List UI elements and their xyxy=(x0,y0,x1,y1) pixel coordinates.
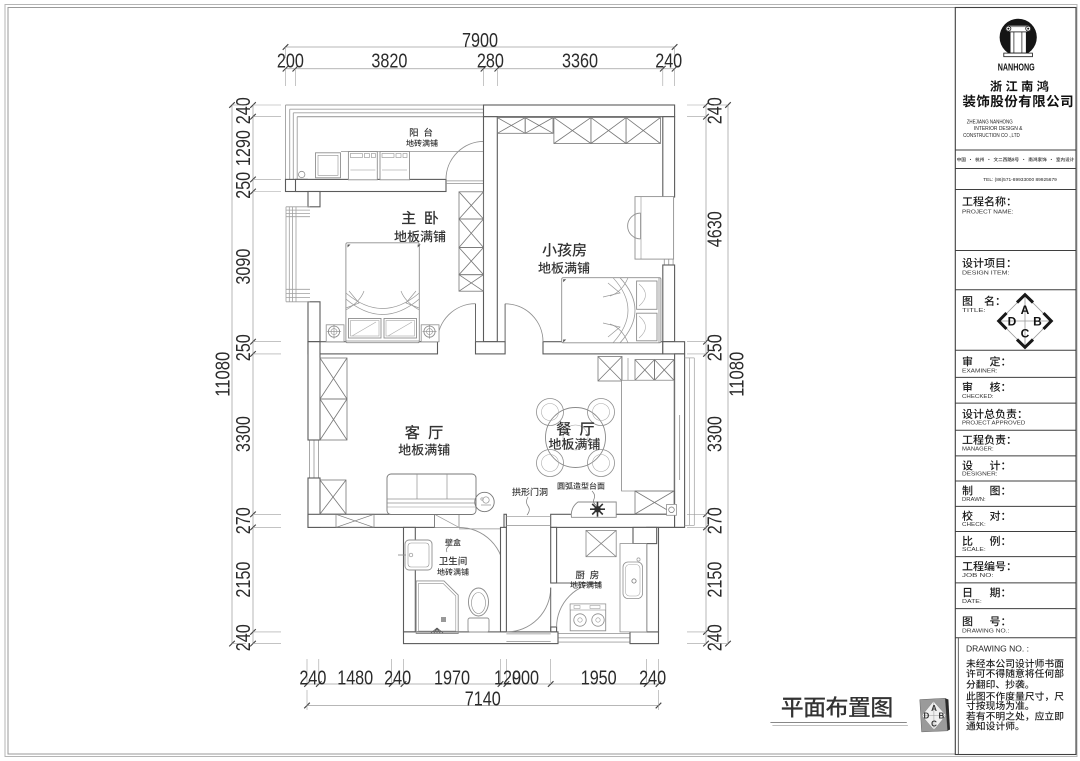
svg-text:900: 900 xyxy=(512,668,539,690)
svg-text:NANHONG: NANHONG xyxy=(998,63,1035,74)
svg-text:B: B xyxy=(939,712,945,721)
svg-text:3090: 3090 xyxy=(233,249,255,285)
svg-text:DESIGNER:: DESIGNER: xyxy=(962,472,998,478)
svg-text:DATE:: DATE: xyxy=(962,599,982,605)
svg-text:240: 240 xyxy=(384,668,411,690)
svg-text:250: 250 xyxy=(705,334,727,361)
svg-text:3820: 3820 xyxy=(371,51,407,73)
svg-text:CHECKED:: CHECKED: xyxy=(962,394,994,400)
svg-text:C: C xyxy=(1021,327,1030,341)
svg-text:250: 250 xyxy=(233,334,255,361)
svg-text:DRAWING NO. :: DRAWING NO. : xyxy=(966,644,1029,654)
svg-text:PROJECT NAME:: PROJECT NAME: xyxy=(962,210,1014,216)
svg-text:270: 270 xyxy=(705,507,727,534)
svg-text:7900: 7900 xyxy=(462,30,498,52)
svg-text:CHECK:: CHECK: xyxy=(962,522,986,528)
svg-text:TEL: (86)571-89933000 899256: TEL: (86)571-89933000 89925679 xyxy=(983,177,1057,183)
svg-text:2150: 2150 xyxy=(705,562,727,598)
svg-text:C: C xyxy=(931,720,937,729)
svg-text:2150: 2150 xyxy=(233,562,255,598)
svg-text:200: 200 xyxy=(277,51,304,73)
svg-text:240: 240 xyxy=(655,51,682,73)
svg-text:240: 240 xyxy=(705,97,727,124)
svg-text:CONSTRUCTION CO .,LTD: CONSTRUCTION CO .,LTD xyxy=(963,133,1020,139)
svg-text:240: 240 xyxy=(299,668,326,690)
svg-text:INTERIOR DESIGN &: INTERIOR DESIGN & xyxy=(974,126,1023,132)
svg-text:EXAMINER:: EXAMINER: xyxy=(962,369,998,375)
svg-text:DESIGN ITEM:: DESIGN ITEM: xyxy=(962,271,1010,277)
svg-text:270: 270 xyxy=(233,507,255,534)
svg-text:SCALE:: SCALE: xyxy=(962,547,986,553)
svg-text:A: A xyxy=(931,704,937,713)
svg-text:240: 240 xyxy=(233,624,255,651)
svg-text:TITLE:: TITLE: xyxy=(962,308,986,314)
svg-text:3300: 3300 xyxy=(233,416,255,452)
svg-text:DRAWING NO.:: DRAWING NO.: xyxy=(962,628,1010,634)
svg-text:240: 240 xyxy=(233,97,255,124)
svg-text:11080: 11080 xyxy=(213,352,235,397)
svg-text:B: B xyxy=(1033,315,1042,329)
svg-text:1480: 1480 xyxy=(337,668,373,690)
svg-text:3360: 3360 xyxy=(562,51,598,73)
svg-text:7140: 7140 xyxy=(465,689,501,711)
svg-text:240: 240 xyxy=(705,624,727,651)
svg-text:3300: 3300 xyxy=(705,416,727,452)
svg-text:240: 240 xyxy=(639,668,666,690)
svg-text:11080: 11080 xyxy=(727,352,749,397)
svg-text:1950: 1950 xyxy=(581,668,617,690)
svg-text:ZHEJIANG NANHONG: ZHEJIANG NANHONG xyxy=(967,119,1013,125)
svg-text:1970: 1970 xyxy=(434,668,470,690)
svg-text:A: A xyxy=(1021,303,1030,317)
svg-text:280: 280 xyxy=(477,51,504,73)
svg-text:250: 250 xyxy=(233,172,255,199)
svg-text:1290: 1290 xyxy=(233,130,255,166)
svg-text:JOB NO:: JOB NO: xyxy=(962,573,994,579)
svg-text:4630: 4630 xyxy=(705,211,727,247)
svg-text:DRAWN:: DRAWN: xyxy=(962,497,986,503)
svg-text:PROJECT APPROVED: PROJECT APPROVED xyxy=(962,420,1025,426)
svg-text:D: D xyxy=(1008,315,1017,329)
svg-text:D: D xyxy=(924,712,930,721)
svg-text:MANAGER:: MANAGER: xyxy=(962,446,994,452)
